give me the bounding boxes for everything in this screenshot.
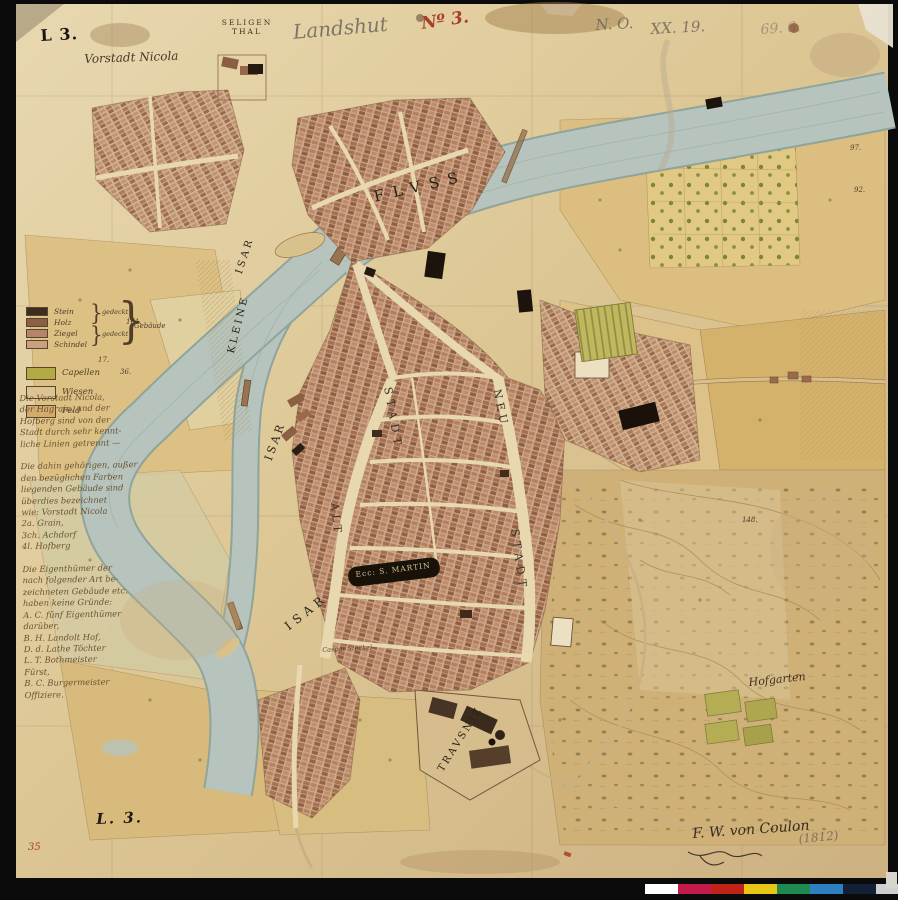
legend-swatch bbox=[26, 329, 48, 338]
legend-brace-small-2: } bbox=[90, 324, 103, 346]
parcel-number: 161. bbox=[126, 318, 142, 326]
legend-swatch bbox=[26, 307, 48, 316]
legend-label: Capellen bbox=[62, 369, 100, 378]
colorbar-swatch bbox=[645, 884, 678, 894]
pencil-annotation-2: XX. 19. bbox=[650, 17, 706, 38]
plate-mark-bottom: L. 3. bbox=[96, 808, 143, 828]
inventory-number-red: 35 bbox=[28, 842, 41, 853]
label-seligenthal-line1: SELIGEN bbox=[212, 18, 282, 27]
colorbar-swatch bbox=[678, 884, 711, 894]
colorbar-swatch bbox=[777, 884, 810, 894]
colorbar-swatch bbox=[744, 884, 777, 894]
legend-label: Stein bbox=[54, 308, 74, 316]
pencil-annotation-3: 69. 6. bbox=[760, 19, 801, 38]
colorbar-swatch bbox=[810, 884, 843, 894]
parcel-number: 17. bbox=[98, 356, 109, 364]
label-seligenthal: SELIGEN THAL bbox=[212, 18, 282, 36]
legend-swatch bbox=[26, 318, 48, 327]
parcel-number: 148. bbox=[742, 516, 758, 524]
colorbar-swatch bbox=[843, 884, 876, 894]
parcel-number: 92. bbox=[854, 186, 865, 194]
legend-label: Holz bbox=[54, 319, 71, 327]
scale-end-cap bbox=[886, 872, 897, 888]
handwritten-notes: Die Vorstadt Nicola,der Hagrain, und der… bbox=[19, 391, 152, 701]
parcel-number: 97. bbox=[850, 144, 861, 152]
legend-label: Schindel bbox=[54, 341, 87, 349]
plate-mark-top: L 3. bbox=[40, 24, 78, 45]
color-calibration-bar bbox=[645, 884, 898, 894]
handwritten-note-line: Offiziere. bbox=[24, 687, 152, 701]
scanned-map-page: L 3. Vorstadt Nicola SELIGEN THAL Landsh… bbox=[0, 0, 898, 900]
colorbar-swatch bbox=[711, 884, 744, 894]
pencil-annotation-1: N. O. bbox=[595, 14, 634, 34]
handwritten-note-line: Die dahin gehörigen, außer bbox=[21, 459, 149, 473]
legend-swatch bbox=[26, 367, 56, 380]
parcel-number: 36. bbox=[120, 368, 131, 376]
legend-swatch bbox=[26, 340, 48, 349]
legend-brace-small-1: } bbox=[90, 302, 103, 324]
legend-label: Ziegel bbox=[54, 330, 78, 338]
label-seligenthal-line2: THAL bbox=[212, 27, 282, 36]
legend-row: Capellen bbox=[26, 364, 156, 383]
